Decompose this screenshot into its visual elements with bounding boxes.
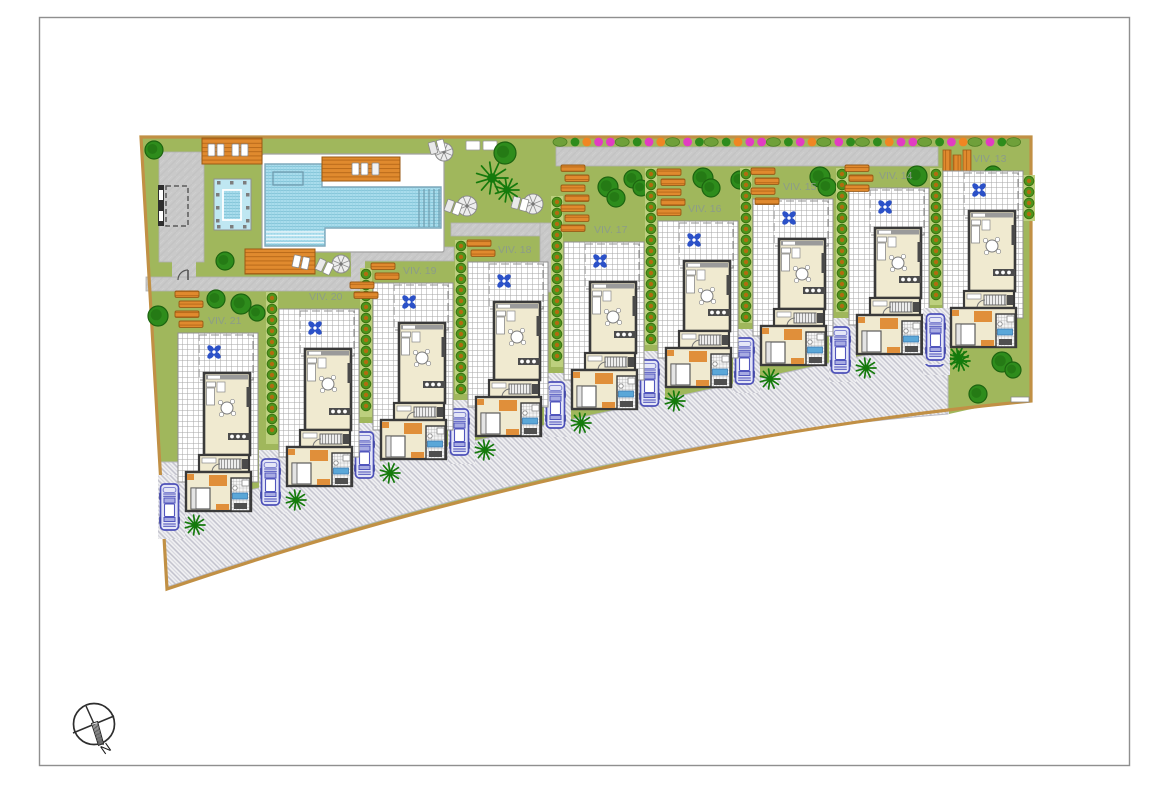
svg-text:VIV. 21: VIV. 21 xyxy=(208,315,242,327)
svg-text:VIV. 18: VIV. 18 xyxy=(498,244,532,256)
svg-text:VIV. 13: VIV. 13 xyxy=(973,153,1007,165)
svg-text:VIV. 19: VIV. 19 xyxy=(403,265,437,277)
svg-text:VIV. 20: VIV. 20 xyxy=(309,291,343,303)
svg-text:VIV. 16: VIV. 16 xyxy=(688,203,722,215)
svg-text:VIV. 14: VIV. 14 xyxy=(879,170,913,182)
svg-text:VIV. 15: VIV. 15 xyxy=(783,181,817,193)
svg-text:VIV. 17: VIV. 17 xyxy=(594,224,628,236)
